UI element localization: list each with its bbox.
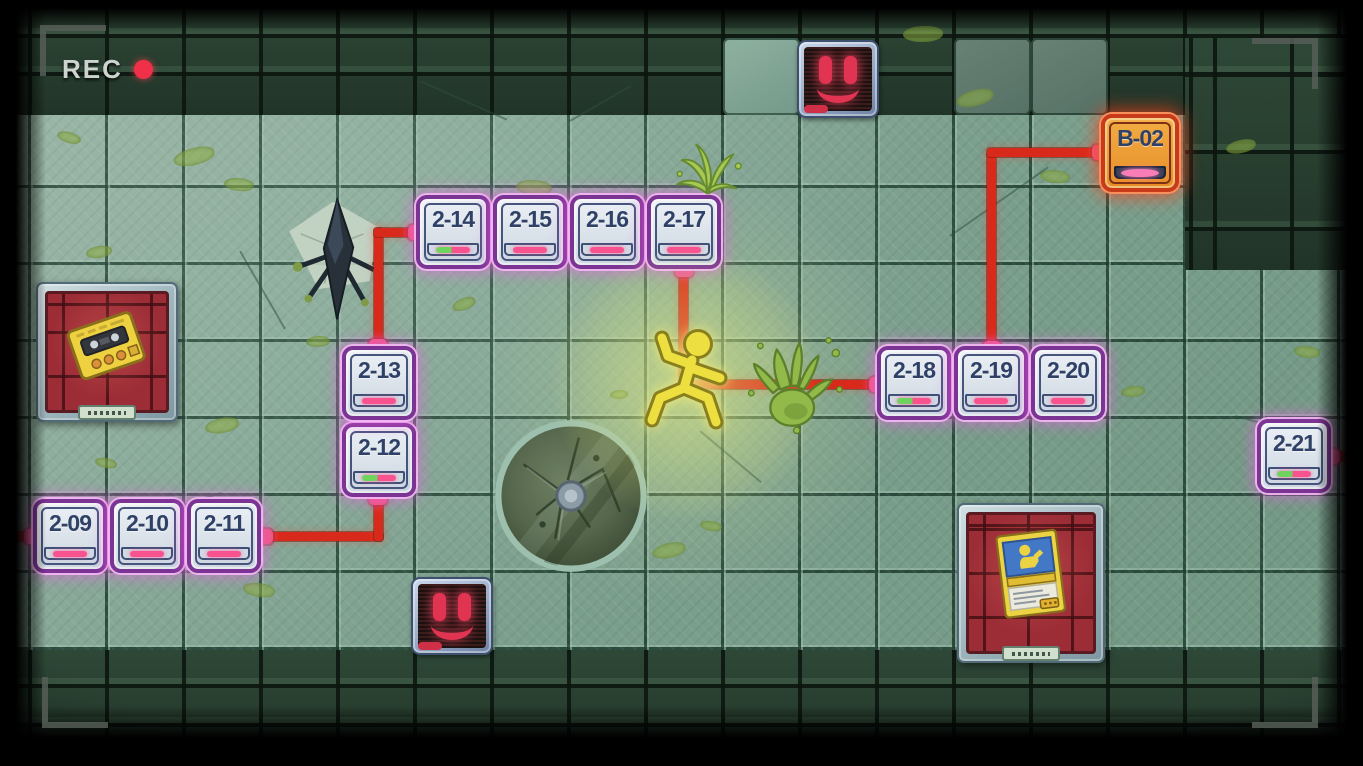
level-node-label: 2-15 — [509, 206, 551, 234]
level-node-label: 2-12 — [358, 434, 400, 462]
level-node-face: 2-21 — [1265, 427, 1323, 485]
level-node-indicator — [207, 551, 241, 557]
path-segment — [374, 228, 383, 350]
wall-tiles-right — [1185, 38, 1363, 270]
level-node-label: 2-16 — [586, 206, 628, 234]
floor-tile — [723, 38, 800, 115]
level-node-label: 2-19 — [970, 357, 1012, 385]
face-monitor-top — [797, 40, 879, 118]
level-node-2-14[interactable]: 2-14 — [416, 195, 490, 269]
level-node-2-12[interactable]: 2-12 — [342, 423, 416, 497]
path-segment — [987, 148, 1105, 157]
monitor-eye-icon — [844, 56, 857, 84]
level-node-indicator-tray — [353, 394, 405, 407]
level-node-2-13[interactable]: 2-13 — [342, 346, 416, 420]
level-node-indicator-tray — [888, 394, 940, 407]
level-map-screen: 2-092-102-112-122-132-142-152-162-172-18… — [0, 0, 1363, 766]
level-node-label: 2-18 — [893, 357, 935, 385]
slime-splat-hand — [744, 330, 844, 438]
slime-stain — [903, 26, 943, 42]
level-node-2-21[interactable]: 2-21 — [1257, 419, 1331, 493]
monitor-eye-icon — [819, 56, 832, 84]
wall-tiles-bottom — [0, 650, 1363, 766]
player-character[interactable] — [640, 328, 736, 432]
level-node-face: 2-19 — [962, 354, 1020, 412]
monitor-smile-icon — [817, 88, 859, 103]
level-node-indicator — [513, 247, 547, 253]
level-node-indicator-tray — [1114, 166, 1166, 179]
level-node-face: 2-11 — [195, 507, 253, 565]
face-monitor-bottom — [411, 577, 493, 655]
level-node-indicator-tray — [1268, 467, 1320, 480]
slime-plant — [668, 136, 746, 200]
level-node-face: 2-10 — [118, 507, 176, 565]
level-node-2-18[interactable]: 2-18 — [877, 346, 951, 420]
level-node-label: 2-10 — [126, 510, 168, 538]
level-node-face: 2-13 — [350, 354, 408, 412]
level-node-indicator — [1051, 398, 1085, 404]
level-node-2-16[interactable]: 2-16 — [570, 195, 644, 269]
level-node-indicator — [1277, 471, 1311, 477]
monitor-smile-icon — [431, 625, 473, 640]
level-node-face: 2-18 — [885, 354, 943, 412]
level-node-2-11[interactable]: 2-11 — [187, 499, 261, 573]
level-node-label: 2-17 — [663, 206, 705, 234]
level-node-2-15[interactable]: 2-15 — [493, 195, 567, 269]
level-node-indicator-tray — [121, 547, 173, 560]
floor-tile — [1031, 38, 1108, 115]
level-node-label: B-02 — [1117, 125, 1163, 153]
monitor-eye-icon — [458, 593, 471, 621]
level-node-indicator-tray — [581, 243, 633, 256]
level-node-indicator-tray — [965, 394, 1017, 407]
rec-label: REC — [62, 54, 123, 85]
level-node-label: 2-13 — [358, 357, 400, 385]
level-node-label: 2-20 — [1047, 357, 1089, 385]
level-node-indicator — [362, 475, 396, 481]
level-node-label: 2-11 — [204, 510, 245, 538]
level-node-indicator-tray — [44, 547, 96, 560]
level-node-label: 2-09 — [49, 510, 91, 538]
level-node-face: 2-15 — [501, 203, 559, 261]
rec-indicator: REC — [62, 54, 153, 85]
monitor-tag — [804, 105, 828, 113]
level-node-face: 2-14 — [424, 203, 482, 261]
level-node-indicator — [130, 551, 164, 557]
level-node-label: 2-14 — [432, 206, 474, 234]
monitor-screen — [804, 47, 872, 111]
level-node-2-10[interactable]: 2-10 — [110, 499, 184, 573]
item-display-cassette — [36, 282, 178, 422]
level-node-indicator-tray — [198, 547, 250, 560]
level-node-indicator — [974, 398, 1008, 404]
item-display-manual — [957, 503, 1105, 663]
panel-label-plate — [78, 405, 136, 420]
level-node-indicator — [362, 398, 396, 404]
level-node-label: 2-21 — [1273, 430, 1315, 458]
level-node-indicator-tray — [427, 243, 479, 256]
level-node-2-20[interactable]: 2-20 — [1031, 346, 1105, 420]
level-node-2-09[interactable]: 2-09 — [33, 499, 107, 573]
level-node-B-02[interactable]: B-02 — [1101, 114, 1179, 192]
rec-dot-icon — [134, 60, 153, 79]
monitor-eye-icon — [433, 593, 446, 621]
level-node-indicator — [436, 247, 470, 253]
level-node-face: 2-16 — [578, 203, 636, 261]
path-segment — [987, 152, 996, 352]
level-node-indicator-tray — [353, 471, 405, 484]
level-node-indicator — [590, 247, 624, 253]
level-node-indicator — [53, 551, 87, 557]
slime-stain — [306, 336, 330, 347]
level-node-indicator — [897, 398, 931, 404]
manual-card-icon — [995, 529, 1067, 625]
monitor-screen — [418, 584, 486, 648]
wall-tiles-top — [0, 0, 1363, 115]
level-node-face: 2-20 — [1039, 354, 1097, 412]
panel-label-plate — [1002, 646, 1060, 661]
level-node-indicator-tray — [504, 243, 556, 256]
monitor-tag — [418, 642, 442, 650]
level-node-2-19[interactable]: 2-19 — [954, 346, 1028, 420]
level-node-face: 2-09 — [41, 507, 99, 565]
level-node-face: B-02 — [1109, 122, 1171, 184]
level-node-indicator-tray — [1042, 394, 1094, 407]
level-node-face: 2-12 — [350, 431, 408, 489]
level-node-indicator — [1121, 169, 1159, 177]
